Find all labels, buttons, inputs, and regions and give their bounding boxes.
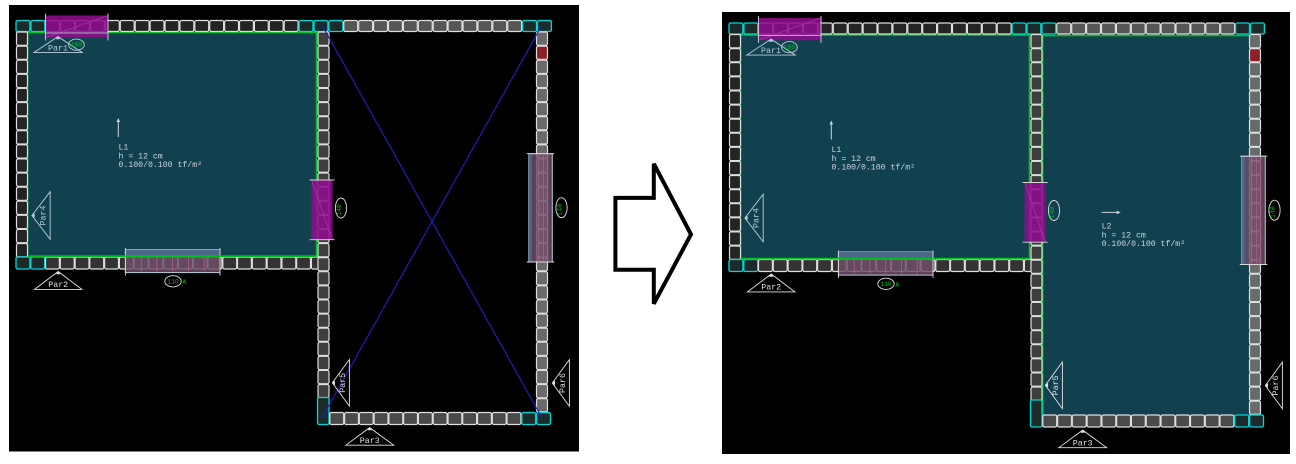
svg-text:110: 110 bbox=[167, 278, 179, 285]
svg-text:Par3: Par3 bbox=[1073, 440, 1093, 449]
svg-text:180: 180 bbox=[784, 44, 796, 51]
svg-text:Par2: Par2 bbox=[48, 281, 68, 290]
svg-text:Par4: Par4 bbox=[753, 208, 762, 228]
svg-text:Par5: Par5 bbox=[1052, 375, 1061, 395]
svg-text:Par1: Par1 bbox=[48, 45, 68, 54]
svg-text:0.100/0.100 tf/m²: 0.100/0.100 tf/m² bbox=[1102, 239, 1186, 249]
svg-text:h = 12 cm: h = 12 cm bbox=[119, 151, 163, 161]
svg-text:h = 12 cm: h = 12 cm bbox=[832, 154, 876, 164]
svg-text:Par1: Par1 bbox=[761, 47, 781, 56]
svg-text:180: 180 bbox=[71, 42, 83, 49]
svg-text:A: A bbox=[896, 282, 900, 289]
svg-text:140: 140 bbox=[336, 204, 343, 216]
svg-text:0.100/0.100 tf/m²: 0.100/0.100 tf/m² bbox=[119, 160, 203, 170]
svg-text:Par6: Par6 bbox=[1272, 376, 1281, 396]
svg-text:Par6: Par6 bbox=[559, 373, 568, 393]
svg-text:140: 140 bbox=[1270, 206, 1277, 218]
svg-text:Par2: Par2 bbox=[761, 284, 781, 293]
svg-text:140: 140 bbox=[1049, 207, 1056, 219]
svg-text:110: 110 bbox=[880, 281, 892, 288]
svg-text:Par4: Par4 bbox=[40, 206, 49, 226]
svg-text:L1: L1 bbox=[119, 144, 129, 153]
svg-text:h = 12 cm: h = 12 cm bbox=[1102, 230, 1146, 240]
svg-text:0.100/0.100 tf/m²: 0.100/0.100 tf/m² bbox=[832, 163, 916, 173]
svg-text:A: A bbox=[183, 279, 187, 286]
svg-text:Par5: Par5 bbox=[339, 373, 348, 393]
svg-text:L1: L1 bbox=[832, 146, 842, 155]
svg-text:140: 140 bbox=[557, 204, 564, 216]
svg-text:L2: L2 bbox=[1102, 223, 1112, 232]
svg-text:Par3: Par3 bbox=[360, 437, 380, 446]
